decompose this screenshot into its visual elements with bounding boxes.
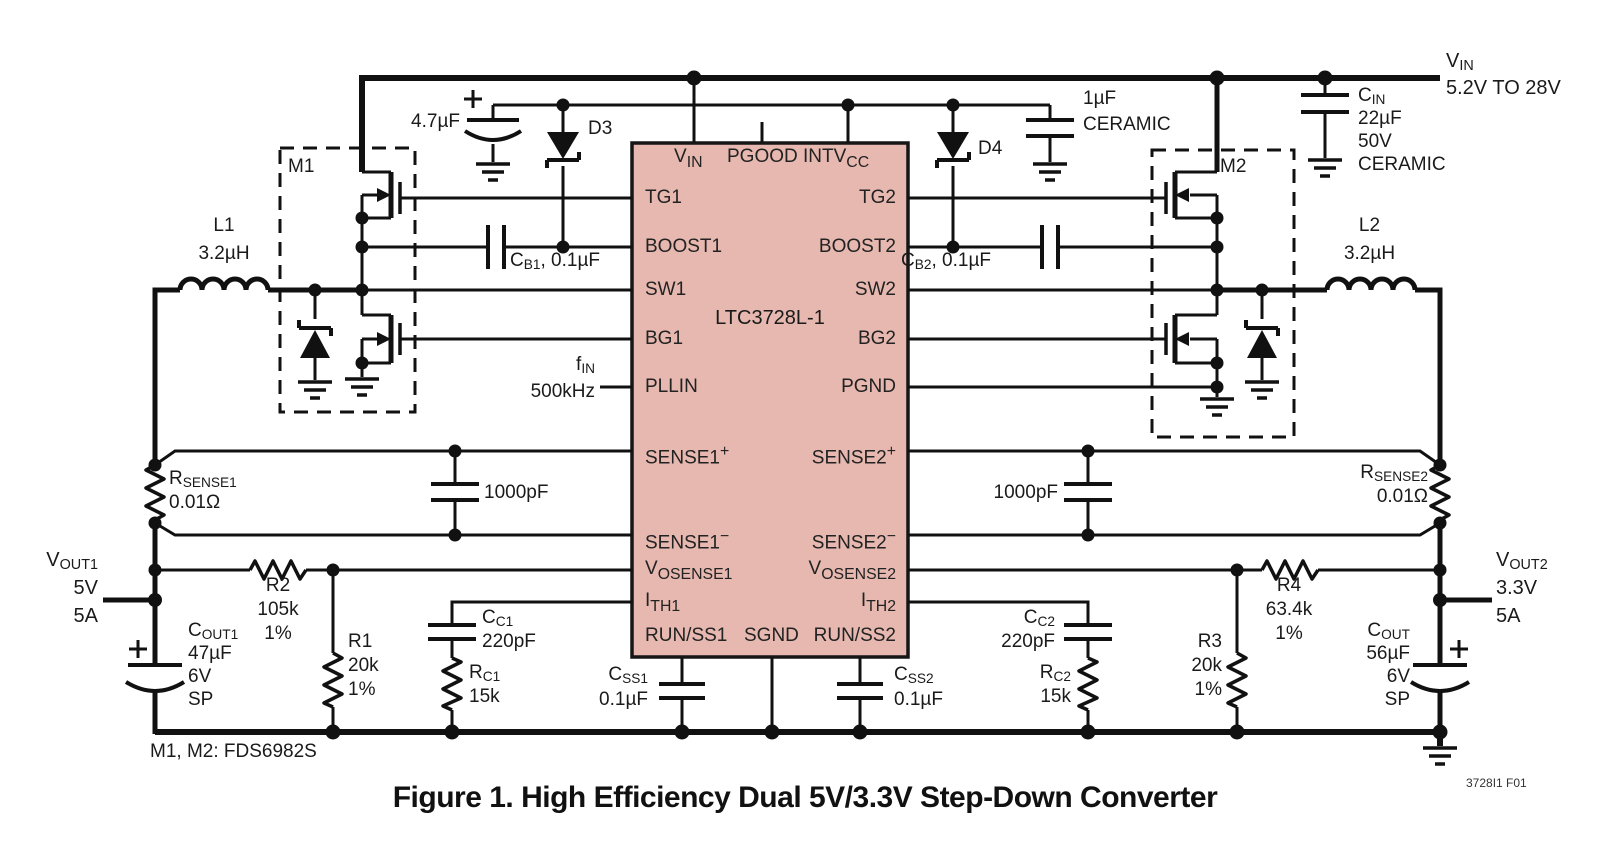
css2-plates [837,684,883,698]
cb1-label: CB1, 0.1µF [510,249,600,272]
gnd-m2-fet [1200,399,1234,415]
l1-label: L1 3.2µH [179,212,269,268]
cout1-label: COUT1 47µF 6V SP [188,619,238,711]
sense1p-wire [155,451,633,465]
gnd-m1-fet [345,379,379,395]
ic-pin-sw1: SW1 [645,279,686,301]
sense2m-wire [908,523,1440,535]
m1-body-diode [299,320,331,358]
gnd-m1-diode [298,382,332,398]
m2-bot-fet-leads [1175,315,1217,397]
ic-pin-runss2: RUN/SS2 [700,625,896,647]
cout2-label: COUT 56µF 6V SP [1328,619,1410,711]
rsense2-zigzag [1431,465,1449,523]
d3-diode [547,132,579,168]
d3-label: D3 [588,117,612,140]
d4-diode [937,132,969,168]
css1-plates [659,684,705,698]
ic-pin-boost2: BOOST2 [700,236,896,258]
rsense1-zigzag [146,465,164,523]
gnd-m2-diode [1245,382,1279,398]
r3-zigzag [1228,653,1246,707]
rc2-zigzag [1079,658,1097,710]
cf1-label: 1000pF [484,481,548,504]
cout1-plates [126,665,184,691]
cout1-plus [129,640,147,658]
m1-box [280,148,415,412]
cc2-label: CC2 220pF [962,606,1055,654]
rc1-zigzag [443,658,461,710]
c4u7-plus [464,90,482,108]
ic-pin-tg1: TG1 [645,187,682,209]
schematic-figure: VIN PGOOD INTVCC TG1 BOOST1 SW1 BG1 PLLI… [0,0,1605,865]
vout2-label: VOUT2 3.3V 5A [1496,546,1548,630]
cc2-plates [1064,625,1112,639]
ic-pin-vosense2: VOSENSE2 [700,558,896,586]
r1-zigzag [324,653,342,707]
d4-label: D4 [978,137,1002,160]
cb1-plates [488,225,504,269]
cout2-plus [1450,640,1468,658]
r2-label: R2 105k 1% [249,574,307,646]
vin-supply-label: VIN 5.2V TO 28V [1446,48,1561,102]
ic-pin-vin: VIN [674,146,703,174]
ic-name: LTC3728L-1 [700,307,840,330]
vout1-label: VOUT1 5V 5A [8,546,98,630]
l1-coil [180,279,268,290]
cc1-label: CC1 220pF [482,606,536,654]
ic-pin-sw2: SW2 [700,279,896,301]
cf1-plates [431,484,479,500]
cin-label: CIN 22µF 50V CERAMIC [1358,84,1446,176]
ic-pin-ith2: ITH2 [700,590,896,618]
rsense2-label: RSENSE2 0.01Ω [1318,461,1428,509]
ic-pin-sense2m: SENSE2− [700,526,896,554]
sense1m-wire [155,523,633,535]
gnd-c4u7 [476,164,510,180]
r3-label: R3 20k 1% [1164,630,1222,702]
css2-label: CSS2 0.1µF [894,662,943,712]
c4u7-label: 4.7µF [352,110,460,133]
cb2-label: CB2, 0.1µF [901,249,991,272]
m1-label: M1 [288,155,314,178]
l2-label: L2 3.2µH [1322,212,1417,268]
m2-label: M2 [1220,155,1246,178]
cf2-label: 1000pF [958,481,1058,504]
cb2-plates [1042,225,1058,269]
ic-pin-ith1: ITH1 [645,590,680,618]
ic-pin-intvcc: INTVCC [803,146,869,174]
ic-pin-pgnd: PGND [700,376,896,398]
cf2-plates [1064,484,1112,500]
c1uf-plates [1026,120,1074,136]
rc2-label: RC2 15k [983,661,1071,709]
fin-label: fIN 500kHz [495,351,595,405]
ic-pin-sense2p: SENSE2+ [700,441,896,469]
cc1-plates [428,625,476,639]
gnd-cin [1308,160,1342,176]
r4-label: R4 63.4k 1% [1258,574,1320,646]
mosfet-note: M1, M2: FDS6982S [150,740,317,763]
l2-coil [1327,279,1415,290]
m2-body-diode [1246,320,1278,358]
r1-label: R1 20k 1% [348,630,379,702]
ic-pin-pllin: PLLIN [645,376,698,398]
ic-pin-pgood: PGOOD [727,146,798,168]
ic-pin-tg2: TG2 [700,187,896,209]
ic-pin-bg1: BG1 [645,328,683,350]
cin-plates [1301,95,1349,112]
c4u7-plates [465,120,521,140]
figure-title: Figure 1. High Efficiency Dual 5V/3.3V S… [100,781,1510,815]
c-intvcc-label: 1µF CERAMIC [1083,86,1171,138]
gnd-output [1423,748,1457,764]
rsense1-label: RSENSE1 0.01Ω [169,467,237,515]
css1-label: CSS1 0.1µF [556,662,648,712]
rc1-label: RC1 15k [469,661,500,709]
cout2-plates [1411,665,1469,691]
ic-pin-bg2: BG2 [700,328,896,350]
gnd-c1uf [1033,164,1067,180]
